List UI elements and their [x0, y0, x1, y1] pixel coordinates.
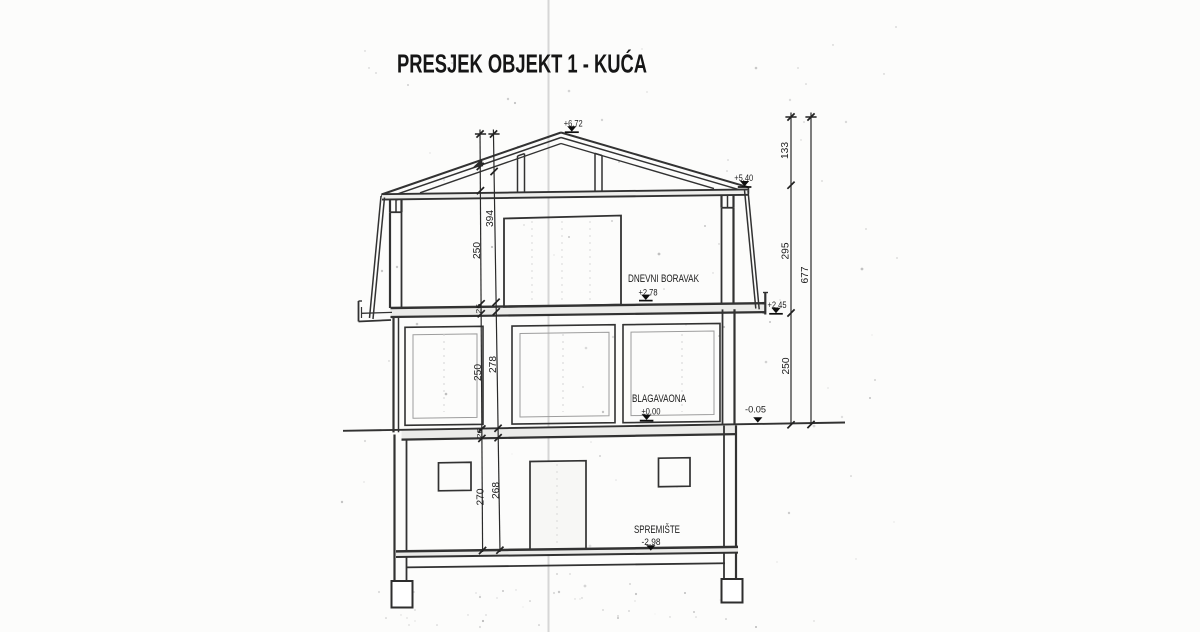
svg-text:BLAGAVAONA: BLAGAVAONA — [632, 393, 686, 405]
svg-text:677: 677 — [800, 266, 811, 283]
svg-text:278: 278 — [488, 356, 499, 373]
svg-text:250: 250 — [781, 357, 792, 374]
svg-text:26: 26 — [474, 304, 483, 314]
svg-text:270: 270 — [476, 488, 487, 505]
svg-text:PRESJEK OBJEKT 1 - KUĆA: PRESJEK OBJEKT 1 - KUĆA — [397, 49, 647, 79]
svg-text:268: 268 — [491, 482, 502, 499]
svg-text:133: 133 — [780, 142, 791, 159]
svg-text:250: 250 — [473, 364, 484, 381]
svg-text:295: 295 — [781, 242, 792, 259]
svg-text:26: 26 — [475, 429, 484, 439]
svg-text:DNEVNI BORAVAK: DNEVNI BORAVAK — [628, 273, 699, 285]
svg-text:-0.05: -0.05 — [745, 405, 766, 415]
svg-text:SPREMIŠTE: SPREMIŠTE — [634, 523, 680, 536]
svg-text:394: 394 — [485, 210, 496, 227]
svg-text:250: 250 — [472, 242, 483, 259]
